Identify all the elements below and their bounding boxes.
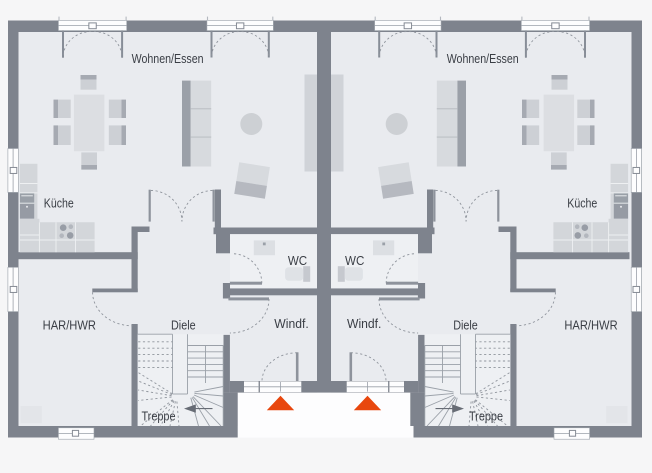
- svg-text:Windf.: Windf.: [347, 316, 381, 331]
- svg-text:WC: WC: [288, 253, 308, 268]
- svg-text:Treppe: Treppe: [141, 409, 175, 424]
- svg-text:Windf.: Windf.: [274, 316, 308, 331]
- svg-text:Wohnen/Essen: Wohnen/Essen: [447, 51, 519, 66]
- svg-text:Küche: Küche: [44, 196, 74, 211]
- svg-text:WC: WC: [345, 253, 365, 268]
- svg-text:Küche: Küche: [567, 196, 597, 211]
- svg-text:Diele: Diele: [453, 318, 478, 333]
- svg-text:HAR/HWR: HAR/HWR: [43, 318, 96, 333]
- svg-text:Diele: Diele: [171, 318, 196, 333]
- svg-text:Wohnen/Essen: Wohnen/Essen: [132, 51, 204, 66]
- svg-text:HAR/HWR: HAR/HWR: [564, 318, 617, 333]
- svg-text:Treppe: Treppe: [469, 409, 503, 424]
